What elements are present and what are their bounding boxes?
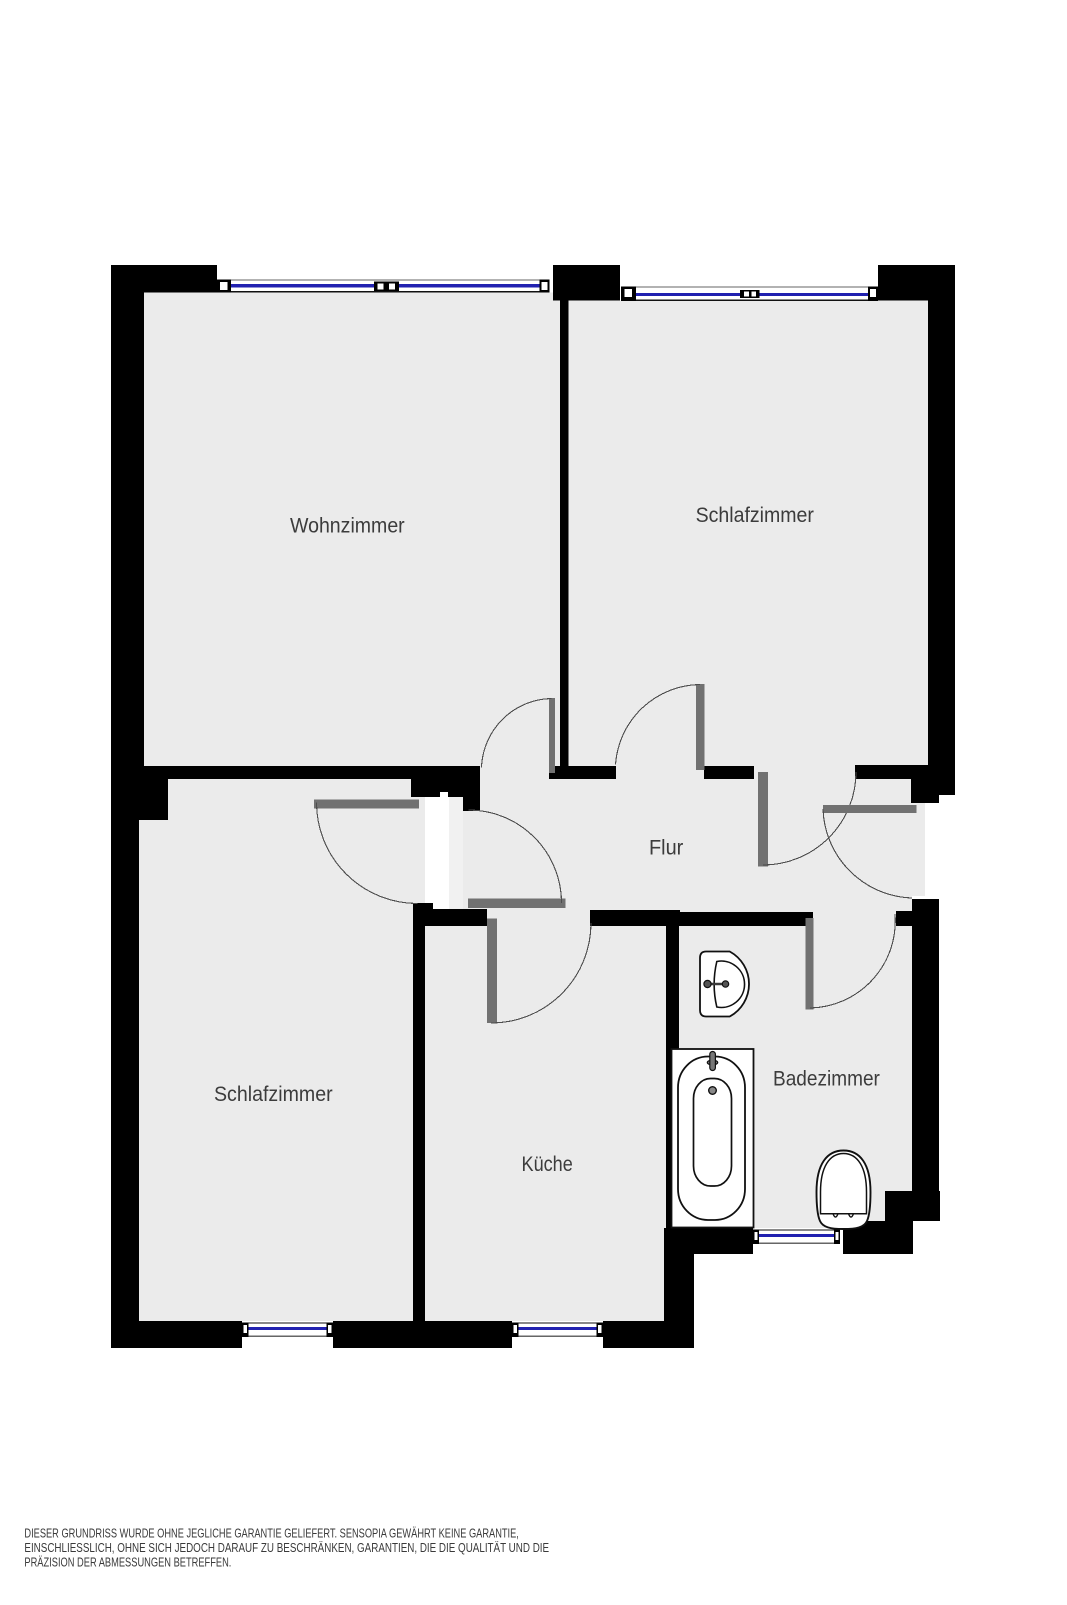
svg-text:Wohnzimmer: Wohnzimmer	[290, 514, 405, 538]
svg-text:DIESER GRUNDRISS WURDE OHNE JE: DIESER GRUNDRISS WURDE OHNE JEGLICHE GAR…	[24, 1527, 519, 1541]
svg-text:Schlafzimmer: Schlafzimmer	[696, 503, 814, 527]
svg-text:Flur: Flur	[649, 836, 683, 860]
svg-text:Badezimmer: Badezimmer	[773, 1067, 880, 1091]
svg-text:PRÄZISION DER ABMESSUNGEN BETR: PRÄZISION DER ABMESSUNGEN BETREFFEN.	[24, 1556, 231, 1570]
svg-text:Schlafzimmer: Schlafzimmer	[214, 1082, 333, 1106]
svg-text:Küche: Küche	[522, 1152, 573, 1176]
svg-text:EINSCHLIESSLICH, OHNE SICH JED: EINSCHLIESSLICH, OHNE SICH JEDOCH DARAUF…	[24, 1541, 549, 1555]
